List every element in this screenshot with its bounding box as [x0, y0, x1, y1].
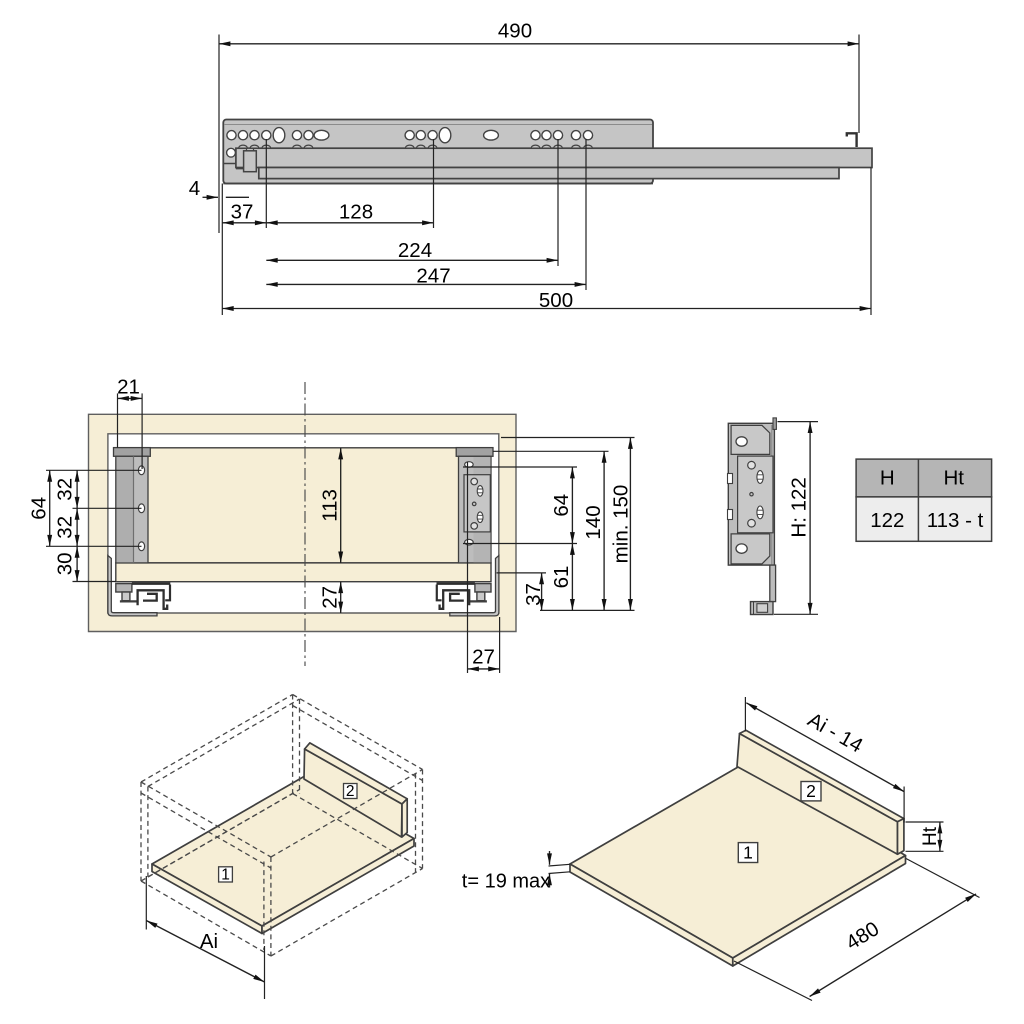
svg-text:490: 490: [498, 20, 532, 43]
svg-text:128: 128: [339, 201, 373, 224]
svg-text:37: 37: [522, 583, 545, 606]
svg-text:Ht: Ht: [920, 826, 941, 846]
svg-text:H: 122: H: 122: [788, 477, 811, 537]
svg-text:224: 224: [398, 239, 432, 262]
svg-text:247: 247: [416, 265, 450, 288]
svg-text:1: 1: [743, 843, 753, 863]
svg-text:2: 2: [806, 781, 816, 801]
svg-text:480: 480: [842, 917, 883, 955]
svg-text:H: H: [880, 467, 895, 490]
svg-text:113: 113: [319, 489, 342, 522]
svg-text:37: 37: [231, 201, 254, 224]
svg-text:113 - t: 113 - t: [927, 509, 984, 532]
svg-text:32: 32: [54, 478, 77, 501]
svg-text:61: 61: [550, 566, 573, 589]
svg-text:Ai - 14: Ai - 14: [804, 708, 867, 757]
svg-text:64: 64: [550, 494, 573, 517]
svg-text:Ai: Ai: [200, 930, 218, 953]
svg-text:122: 122: [870, 509, 904, 532]
svg-text:30: 30: [54, 552, 77, 575]
svg-text:64: 64: [28, 497, 51, 520]
svg-text:Ht: Ht: [943, 467, 964, 490]
svg-text:2: 2: [346, 783, 355, 800]
svg-text:32: 32: [54, 516, 77, 539]
svg-text:4: 4: [189, 177, 200, 200]
svg-text:27: 27: [472, 646, 495, 669]
svg-text:min. 150: min. 150: [610, 485, 633, 564]
svg-text:1: 1: [221, 867, 230, 884]
svg-text:27: 27: [319, 586, 342, 609]
svg-text:500: 500: [539, 289, 573, 312]
svg-text:140: 140: [582, 505, 605, 539]
svg-text:t= 19 max: t= 19 max: [462, 871, 550, 893]
svg-text:21: 21: [117, 376, 140, 399]
